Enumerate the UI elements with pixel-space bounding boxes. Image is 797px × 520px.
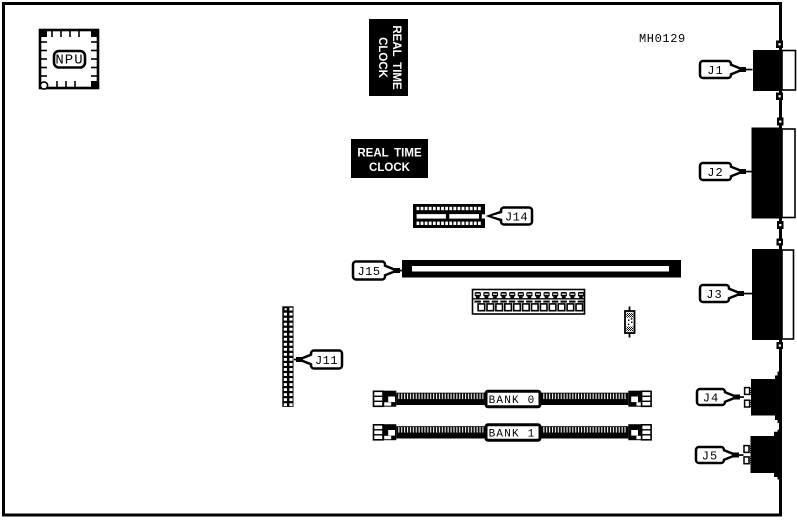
svg-text:REAL TIME: REAL TIME xyxy=(357,148,422,160)
svg-text:J14: J14 xyxy=(505,210,528,224)
svg-text:NPU: NPU xyxy=(55,53,83,69)
svg-text:CLOCK: CLOCK xyxy=(369,162,411,174)
svg-text:MH0129: MH0129 xyxy=(639,32,686,46)
svg-text:J5: J5 xyxy=(702,449,718,463)
svg-text:REAL TIME: REAL TIME xyxy=(390,25,402,90)
svg-text:J1: J1 xyxy=(707,64,723,78)
svg-text:J3: J3 xyxy=(706,288,722,302)
svg-text:CLOCK: CLOCK xyxy=(376,37,388,79)
svg-text:BANK 0: BANK 0 xyxy=(489,395,536,407)
svg-text:J15: J15 xyxy=(357,265,380,279)
svg-text:J4: J4 xyxy=(703,391,719,405)
svg-text:BANK 1: BANK 1 xyxy=(489,428,536,440)
svg-text:J11: J11 xyxy=(315,354,338,368)
svg-text:J2: J2 xyxy=(707,166,723,180)
